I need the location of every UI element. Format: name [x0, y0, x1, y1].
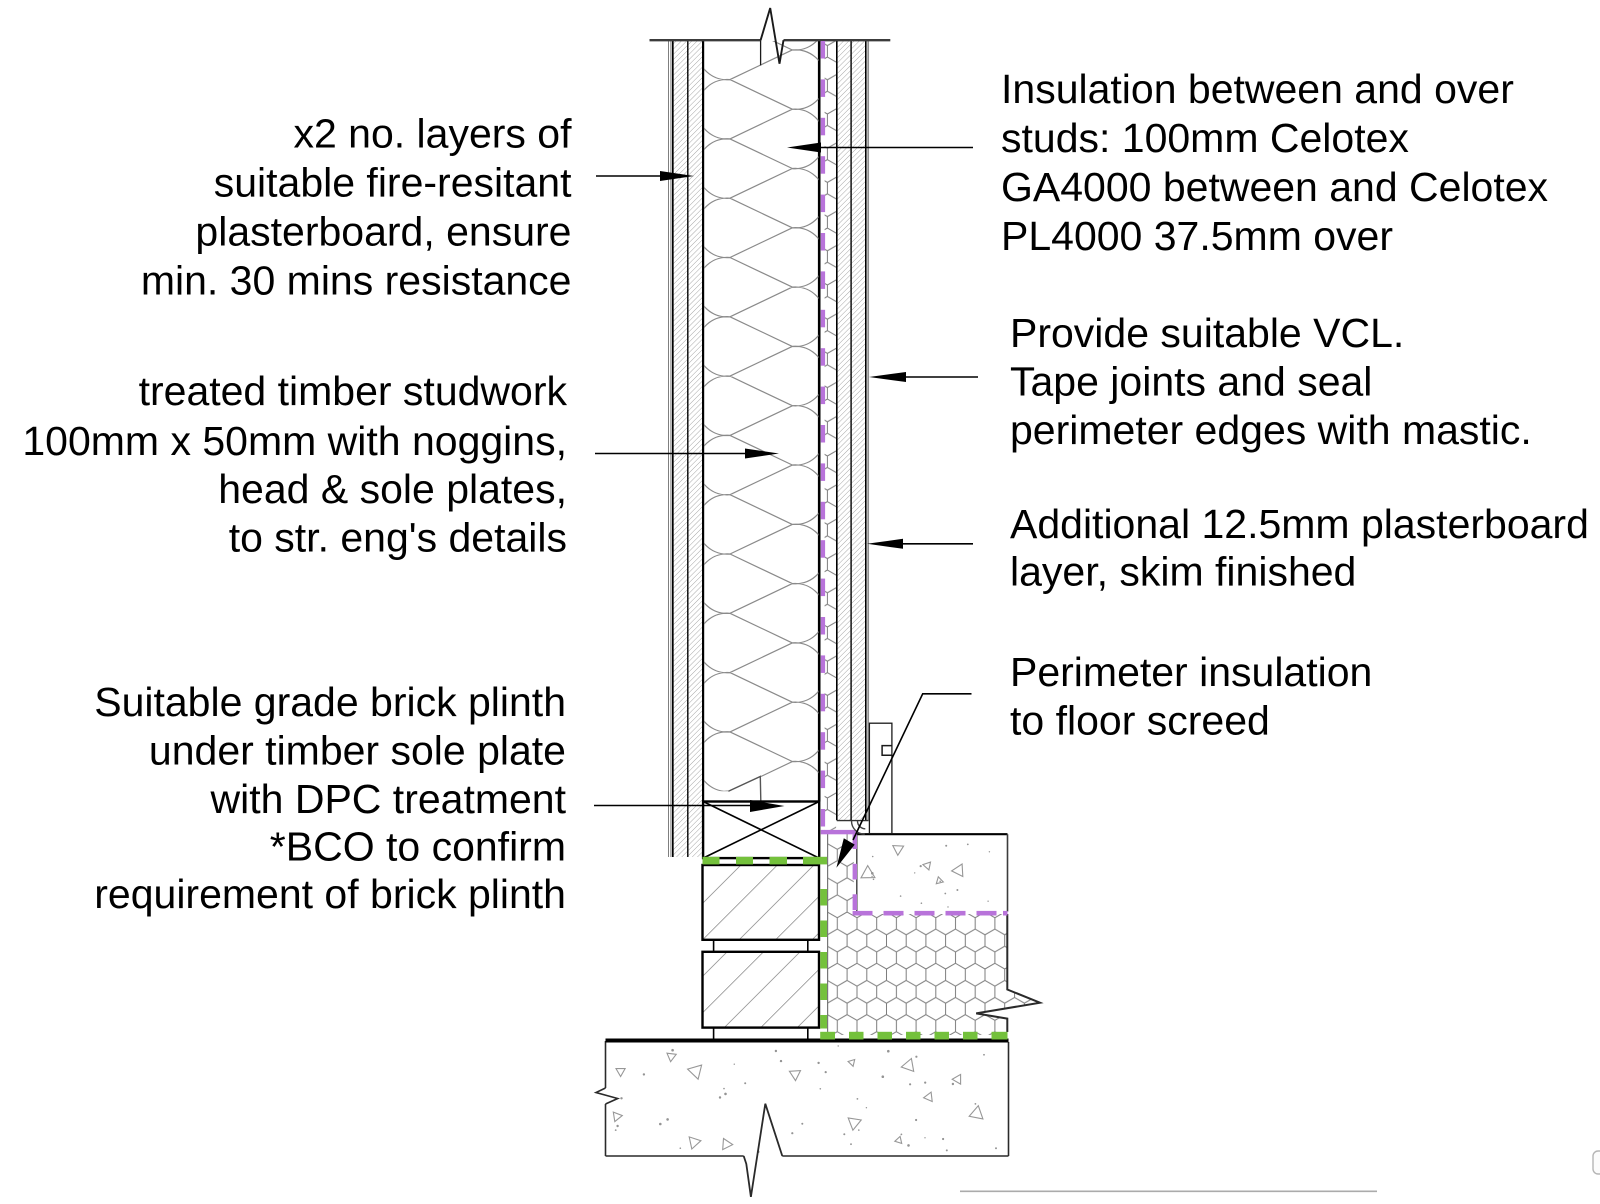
svg-text:to floor screed: to floor screed	[1010, 698, 1270, 744]
svg-text:suitable fire-resitant: suitable fire-resitant	[214, 160, 572, 206]
svg-text:Provide suitable VCL.: Provide suitable VCL.	[1010, 310, 1404, 356]
svg-text:requirement of brick plinth: requirement of brick plinth	[94, 871, 566, 917]
svg-text:studs: 100mm Celotex: studs: 100mm Celotex	[1001, 115, 1409, 161]
svg-text:with DPC treatment: with DPC treatment	[210, 776, 567, 822]
svg-text:min. 30 mins resistance: min. 30 mins resistance	[141, 258, 572, 304]
svg-text:GA4000 between and Celotex: GA4000 between and Celotex	[1001, 164, 1549, 210]
svg-text:perimeter edges with mastic.: perimeter edges with mastic.	[1010, 407, 1532, 453]
svg-text:head & sole plates,: head & sole plates,	[218, 466, 567, 512]
svg-text:under timber sole plate: under timber sole plate	[149, 728, 566, 774]
svg-text:plasterboard, ensure: plasterboard, ensure	[195, 209, 571, 255]
svg-text:*BCO to confirm: *BCO to confirm	[270, 823, 566, 869]
svg-text:to str. eng's details: to str. eng's details	[229, 515, 567, 561]
svg-text:PL4000 37.5mm over: PL4000 37.5mm over	[1001, 213, 1393, 259]
svg-text:x2 no. layers of: x2 no. layers of	[293, 111, 572, 157]
svg-text:Perimeter insulation: Perimeter insulation	[1010, 649, 1372, 695]
svg-text:Additional 12.5mm plasterboard: Additional 12.5mm plasterboard	[1010, 501, 1589, 547]
svg-text:100mm x 50mm with noggins,: 100mm x 50mm with noggins,	[22, 418, 567, 464]
svg-text:Insulation between and over: Insulation between and over	[1001, 66, 1514, 112]
svg-text:layer, skim finished: layer, skim finished	[1010, 549, 1356, 595]
svg-text:treated timber studwork: treated timber studwork	[139, 368, 568, 414]
svg-text:Suitable grade brick plinth: Suitable grade brick plinth	[94, 679, 566, 725]
svg-text:Tape joints and seal: Tape joints and seal	[1010, 359, 1372, 405]
